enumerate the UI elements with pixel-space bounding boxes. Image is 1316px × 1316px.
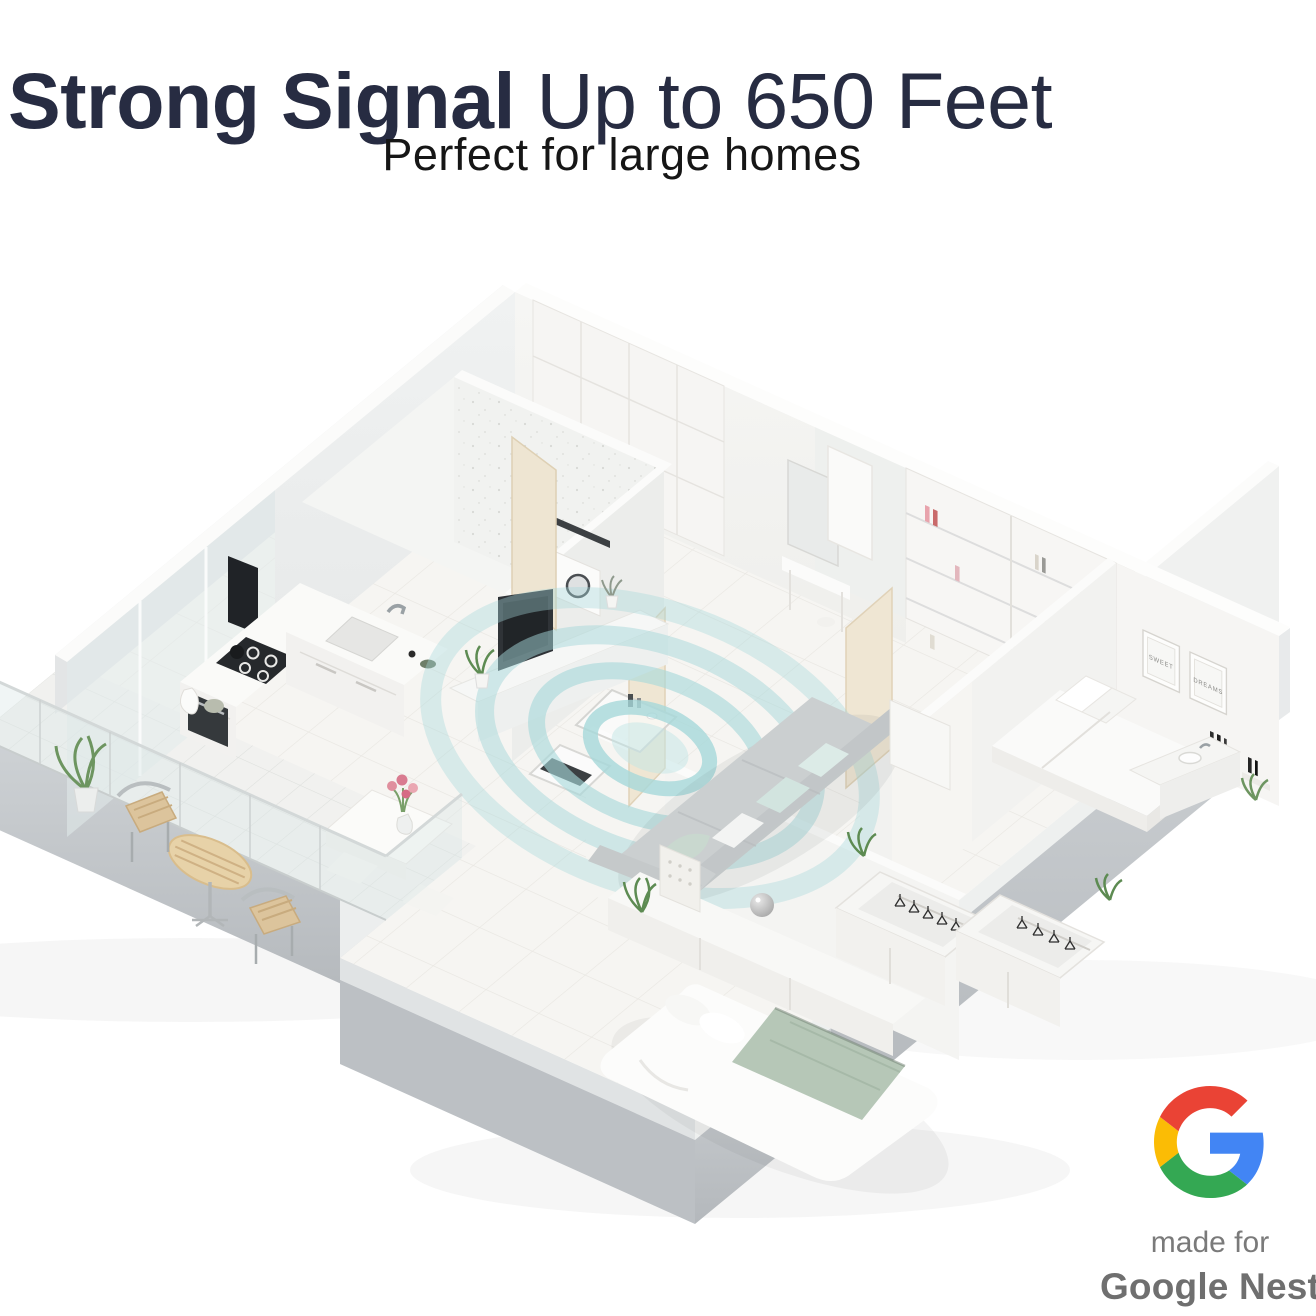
washbasin — [1179, 753, 1201, 764]
made-for-google-nest-badge: made for Google Nest — [1080, 1086, 1316, 1308]
product-marketing-image: Strong Signal Up to 650 Feet Perfect for… — [0, 0, 1316, 1316]
made-for-label: made for — [1080, 1226, 1316, 1260]
disco-ball — [750, 893, 774, 917]
jar — [204, 699, 224, 713]
pan — [230, 645, 244, 659]
brand-label: Google Nest — [1080, 1266, 1316, 1308]
entry-door — [828, 446, 872, 560]
g-green — [1160, 1153, 1247, 1198]
google-g-logo — [1154, 1086, 1266, 1198]
g-red — [1160, 1086, 1248, 1131]
stool — [817, 617, 835, 627]
